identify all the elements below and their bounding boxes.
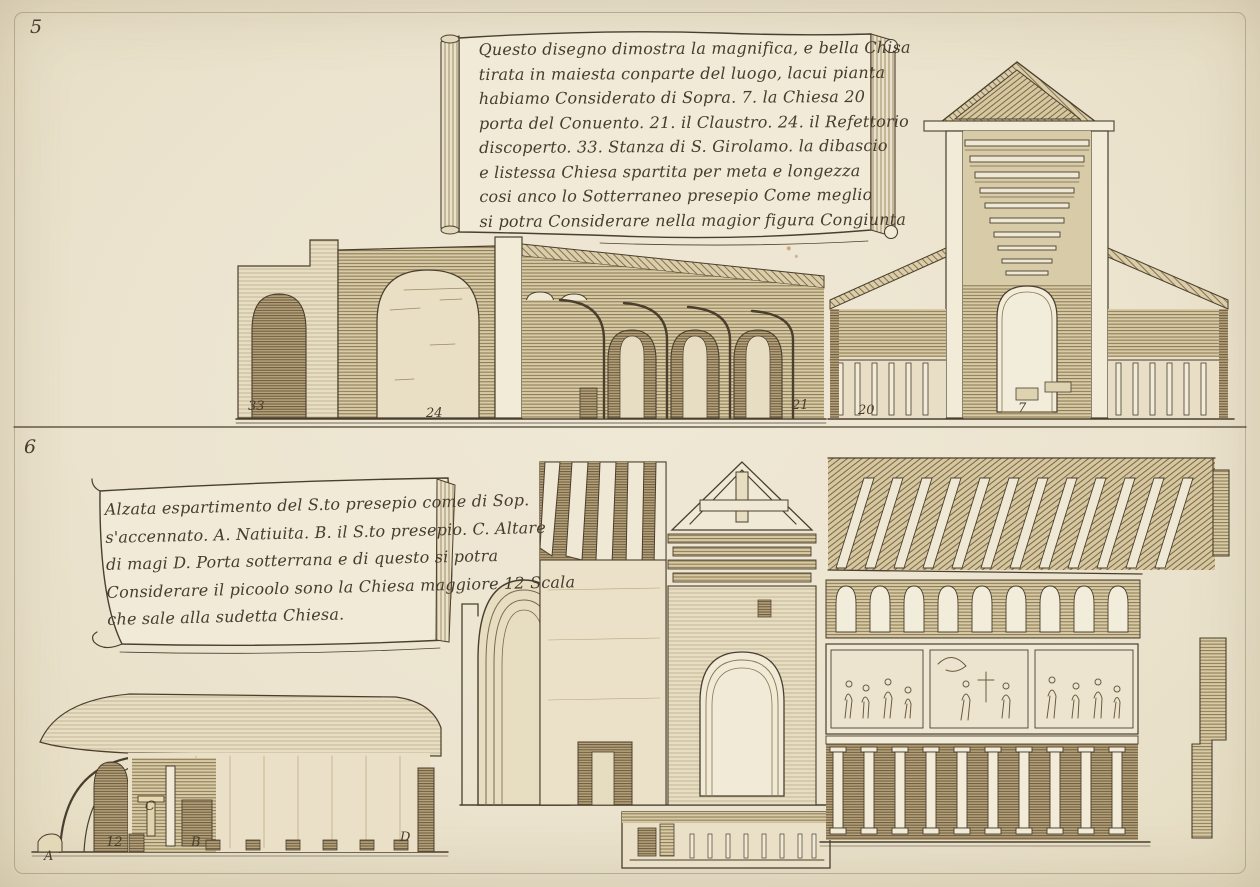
inscription-line: si potra Considerare nella magior figura…	[479, 207, 865, 234]
label-21: 21	[792, 398, 809, 413]
figure-longitudinal-section	[820, 458, 1229, 846]
inscription-line: discoperto. 33. Stanza di S. Girolamo. l…	[479, 134, 865, 161]
clerestory	[826, 580, 1140, 638]
inscription-top: Questo disegno dimostra la magnifica, e …	[478, 36, 865, 234]
right-aisle-roof	[1108, 248, 1228, 309]
plate-number-6: 6	[24, 436, 36, 458]
label-24: 24	[426, 406, 443, 421]
label-a: A	[44, 849, 53, 864]
label-d: D	[400, 830, 410, 845]
label-b: B	[191, 835, 201, 850]
colonnade	[820, 736, 1150, 846]
vault-ceiling	[40, 694, 441, 756]
inscription-line: e listessa Chiesa spartita per meta e lo…	[479, 158, 865, 185]
cornice-profile	[1213, 458, 1229, 556]
inscription-line: cosi anco lo Sotterraneo presepio Come m…	[479, 183, 865, 210]
left-aisle	[830, 309, 946, 418]
label-20: 20	[858, 403, 875, 418]
arch-24	[377, 270, 479, 418]
eaves-beam	[924, 121, 1114, 131]
label-12: 12	[106, 835, 123, 850]
altar	[1016, 388, 1038, 400]
beam-stack	[668, 534, 816, 582]
porta-sotterrana	[418, 768, 434, 852]
pier	[495, 237, 522, 418]
crypt-presepio	[622, 812, 830, 868]
inscription-bottom: Alzata espartimento del S.to presepio co…	[104, 488, 451, 633]
inscription-line: tirata in maiesta conparte del luogo, la…	[479, 60, 865, 87]
plate-number-5: 5	[30, 16, 42, 38]
inscription-line: habiamo Considerato di Sopra. 7. la Chie…	[479, 85, 865, 112]
etching-sheet: 5 6 Questo disegno dimostra la magnifica…	[0, 0, 1260, 887]
inscription-line: porta del Conuento. 21. il Claustro. 24.…	[479, 109, 865, 136]
right-aisle	[1108, 309, 1228, 418]
small-doorway	[580, 388, 597, 418]
inscription-line: Questo disegno dimostra la magnifica, e …	[478, 36, 864, 63]
fresco-frieze	[826, 644, 1138, 734]
label-c: C	[145, 799, 155, 814]
left-aisle-roof	[830, 248, 946, 309]
label-33: 33	[248, 399, 265, 414]
figure-convent-section	[236, 237, 826, 423]
altar-of-magi	[129, 758, 216, 852]
right-wall-profile	[1192, 638, 1226, 838]
figure-subterranean-chapel	[32, 694, 448, 856]
label-7: 7	[1018, 401, 1026, 416]
